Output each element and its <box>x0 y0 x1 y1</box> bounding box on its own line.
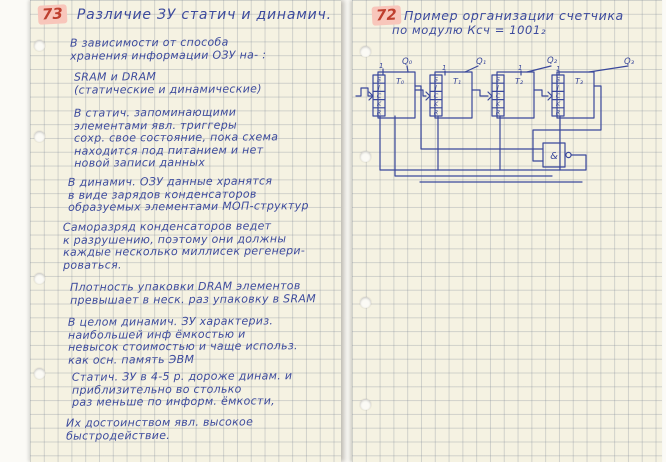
pin-label-k: K <box>556 100 561 108</box>
flipflop-t3: S J C K R T₃ Q₃ 1 <box>548 57 635 118</box>
output-label-q3: Q₃ <box>624 57 635 67</box>
paragraph: SRAM и DRAM (статические и динамические) <box>74 70 262 96</box>
inverter-bubble-icon <box>566 152 571 157</box>
counter-circuit-diagram: S J C K R T₀ Q₀ 1 S J C K R <box>352 42 662 242</box>
pin-label-r: R <box>496 108 501 116</box>
punch-hole <box>34 40 45 51</box>
handwritten-line: быстродействие. <box>66 429 253 443</box>
handwritten-line: каждые несколько миллисек регенери- <box>63 245 305 259</box>
flipflop-t2: S J C K R T₂ Q₂ 1 <box>488 56 558 118</box>
handwritten-line: образуемых элементами МОП-структур <box>68 200 309 214</box>
pin-label-c: C <box>377 92 382 100</box>
nand-gate: & <box>543 143 571 167</box>
const-one-label: 1 <box>442 64 446 72</box>
paragraph: В статич. запоминающими элементами явл. … <box>74 106 279 170</box>
output-label-q1: Q₁ <box>476 57 486 67</box>
pin-label-s: S <box>556 76 560 84</box>
left-page-title: Различие ЗУ статич и динамич. <box>77 7 332 23</box>
left-page-header: 73Различие ЗУ статич и динамич. <box>38 4 332 24</box>
pin-label-r: R <box>377 108 382 116</box>
paragraph: Саморазряд конденсаторов ведет к разруше… <box>63 220 305 272</box>
pin-label-c: C <box>434 92 439 100</box>
flipflop-label: T₁ <box>453 77 461 86</box>
const-one-label: 1 <box>556 65 560 73</box>
pin-label-c: C <box>556 92 561 100</box>
flipflop-label: T₃ <box>575 77 583 86</box>
handwritten-line: раз меньше по информ. ёмкости, <box>72 395 292 409</box>
pin-label-j: J <box>555 84 559 92</box>
right-page-title-line1: Пример организации счетчика <box>404 8 624 23</box>
pin-label-k: K <box>496 100 501 108</box>
right-page-title-line2: по модулю Ксч = 1001₂ <box>392 23 546 37</box>
clock-edge-arrow-icon <box>426 92 430 100</box>
paragraph: Плотность упаковки DRAM элементов превыш… <box>70 280 316 307</box>
pin-label-j: J <box>433 84 437 92</box>
pin-label-r: R <box>434 108 439 116</box>
punch-hole <box>360 297 371 308</box>
pin-label-k: K <box>377 100 382 108</box>
flipflop-label: T₂ <box>515 77 524 86</box>
handwritten-line: роваться. <box>63 258 305 272</box>
paragraph: Статич. ЗУ в 4-5 р. дороже динам. и приб… <box>72 370 293 409</box>
flipflop-t0: S J C K R T₀ Q₀ 1 <box>369 57 415 118</box>
pin-label-c: C <box>496 92 501 100</box>
punch-hole <box>34 368 45 379</box>
right-page-header: 72 <box>372 5 401 25</box>
paragraph: В целом динамич. ЗУ характериз. наибольш… <box>68 315 298 367</box>
handwritten-line: хранения информации ОЗУ на- : <box>70 49 266 63</box>
flipflop-label: T₀ <box>396 77 405 86</box>
pin-label-j: J <box>495 84 499 92</box>
punch-hole <box>34 131 45 142</box>
pin-label-k: K <box>434 100 439 108</box>
left-page: 73Различие ЗУ статич и динамич. В зависи… <box>30 0 341 462</box>
handwritten-line: новой записи данных <box>74 157 278 171</box>
paragraph: В зависимости от способа хранения информ… <box>70 36 266 63</box>
pin-label-j: J <box>376 84 380 92</box>
pin-label-r: R <box>556 108 561 116</box>
pin-label-s: S <box>434 76 438 84</box>
handwritten-line: как осн. память ЭВМ <box>68 353 298 367</box>
paragraph: Их достоинством явл. высокое быстродейст… <box>66 416 253 442</box>
pin-label-s: S <box>377 76 381 84</box>
clock-pulse-icon <box>356 88 373 96</box>
const-one-label: 1 <box>518 64 522 72</box>
pin-label-s: S <box>496 76 500 84</box>
punch-hole <box>360 399 371 410</box>
and-gate-label: & <box>550 151 558 162</box>
punch-hole <box>34 273 45 284</box>
right-page: 72 Пример организации счетчика по модулю… <box>352 0 662 462</box>
paragraph: В динамич. ОЗУ данные хранятся в виде за… <box>68 175 309 214</box>
handwritten-line: (статические и динамические) <box>74 83 262 97</box>
wires <box>380 86 601 182</box>
flipflop-t1: S J C K R T₁ Q₁ 1 <box>426 57 486 118</box>
handwritten-line: превышает в неск. раз упаковку в SRAM <box>70 293 316 307</box>
notebook-scan: 73Различие ЗУ статич и динамич. В зависи… <box>0 0 666 462</box>
output-label-q0: Q₀ <box>402 57 413 67</box>
page-number-left: 73 <box>38 4 68 24</box>
